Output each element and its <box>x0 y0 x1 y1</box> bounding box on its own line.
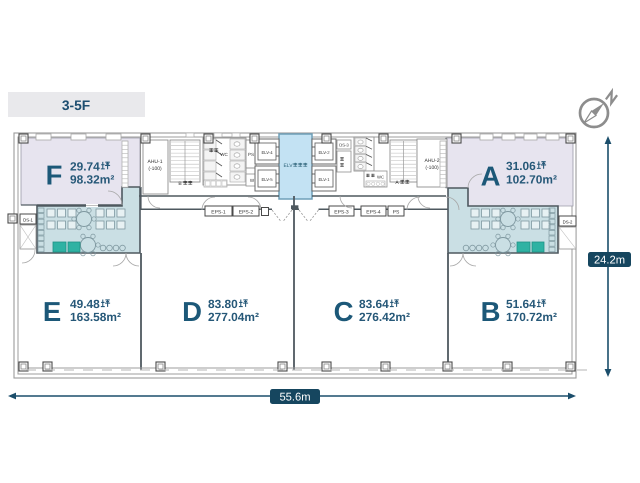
svg-text:ELV-1: ELV-1 <box>318 177 330 182</box>
svg-text:163.58m²: 163.58m² <box>70 310 121 324</box>
svg-text:DS-1: DS-1 <box>23 218 33 223</box>
svg-text:49.48: 49.48 <box>70 297 100 311</box>
svg-text:3-5F: 3-5F <box>62 98 90 113</box>
svg-text:DS-3: DS-3 <box>339 143 349 148</box>
svg-text:ELV-5: ELV-5 <box>261 177 273 182</box>
svg-text:PS: PS <box>248 152 254 157</box>
svg-text:31.06: 31.06 <box>506 159 536 173</box>
svg-text:EPS-4: EPS-4 <box>366 210 381 216</box>
svg-text:ELV: ELV <box>283 163 293 169</box>
svg-text:83.80: 83.80 <box>208 297 238 311</box>
svg-text:ELV-4: ELV-4 <box>261 150 273 155</box>
svg-text:A: A <box>481 161 501 192</box>
svg-text:WC: WC <box>377 175 384 180</box>
svg-text:24.2m: 24.2m <box>594 255 625 267</box>
svg-text:B: B <box>481 296 501 327</box>
svg-text:EPS-2: EPS-2 <box>239 210 254 216</box>
svg-text:E: E <box>43 296 61 327</box>
svg-text:D: D <box>182 296 202 327</box>
svg-text:AHU-2: AHU-2 <box>424 158 439 164</box>
svg-text:98.32m²: 98.32m² <box>70 173 114 187</box>
svg-text:170.72m²: 170.72m² <box>506 310 557 324</box>
svg-text:51.64: 51.64 <box>506 297 536 311</box>
svg-text:ELV-2: ELV-2 <box>318 150 330 155</box>
svg-text:EPS-1: EPS-1 <box>211 210 226 216</box>
svg-text:F: F <box>46 160 63 191</box>
svg-text:276.42m²: 276.42m² <box>359 310 410 324</box>
svg-text:102.70m²: 102.70m² <box>506 173 557 187</box>
svg-text:29.74: 29.74 <box>70 159 100 173</box>
svg-text:(-100): (-100) <box>148 166 162 172</box>
svg-text:55.6m: 55.6m <box>279 392 310 404</box>
svg-text:DS-2: DS-2 <box>563 220 573 225</box>
svg-text:(-100): (-100) <box>425 165 439 171</box>
svg-text:WC: WC <box>220 152 228 157</box>
svg-text:277.04m²: 277.04m² <box>208 310 259 324</box>
svg-text:PS: PS <box>393 210 400 216</box>
svg-text:AHU-1: AHU-1 <box>147 159 162 165</box>
svg-text:EPS-3: EPS-3 <box>334 210 349 216</box>
svg-text:C: C <box>334 296 354 327</box>
svg-text:83.64: 83.64 <box>359 297 389 311</box>
